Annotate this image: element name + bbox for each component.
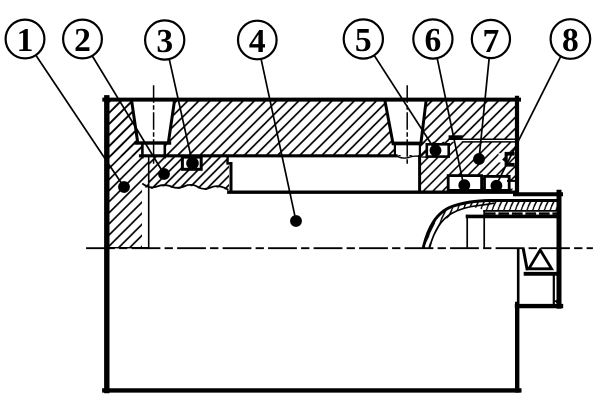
svg-text:1: 1 xyxy=(17,22,34,59)
svg-text:3: 3 xyxy=(156,23,173,60)
svg-text:5: 5 xyxy=(355,22,372,59)
svg-text:6: 6 xyxy=(425,22,442,59)
svg-text:8: 8 xyxy=(562,22,579,59)
svg-text:4: 4 xyxy=(249,23,266,60)
svg-text:2: 2 xyxy=(74,22,91,59)
svg-text:7: 7 xyxy=(483,23,500,60)
